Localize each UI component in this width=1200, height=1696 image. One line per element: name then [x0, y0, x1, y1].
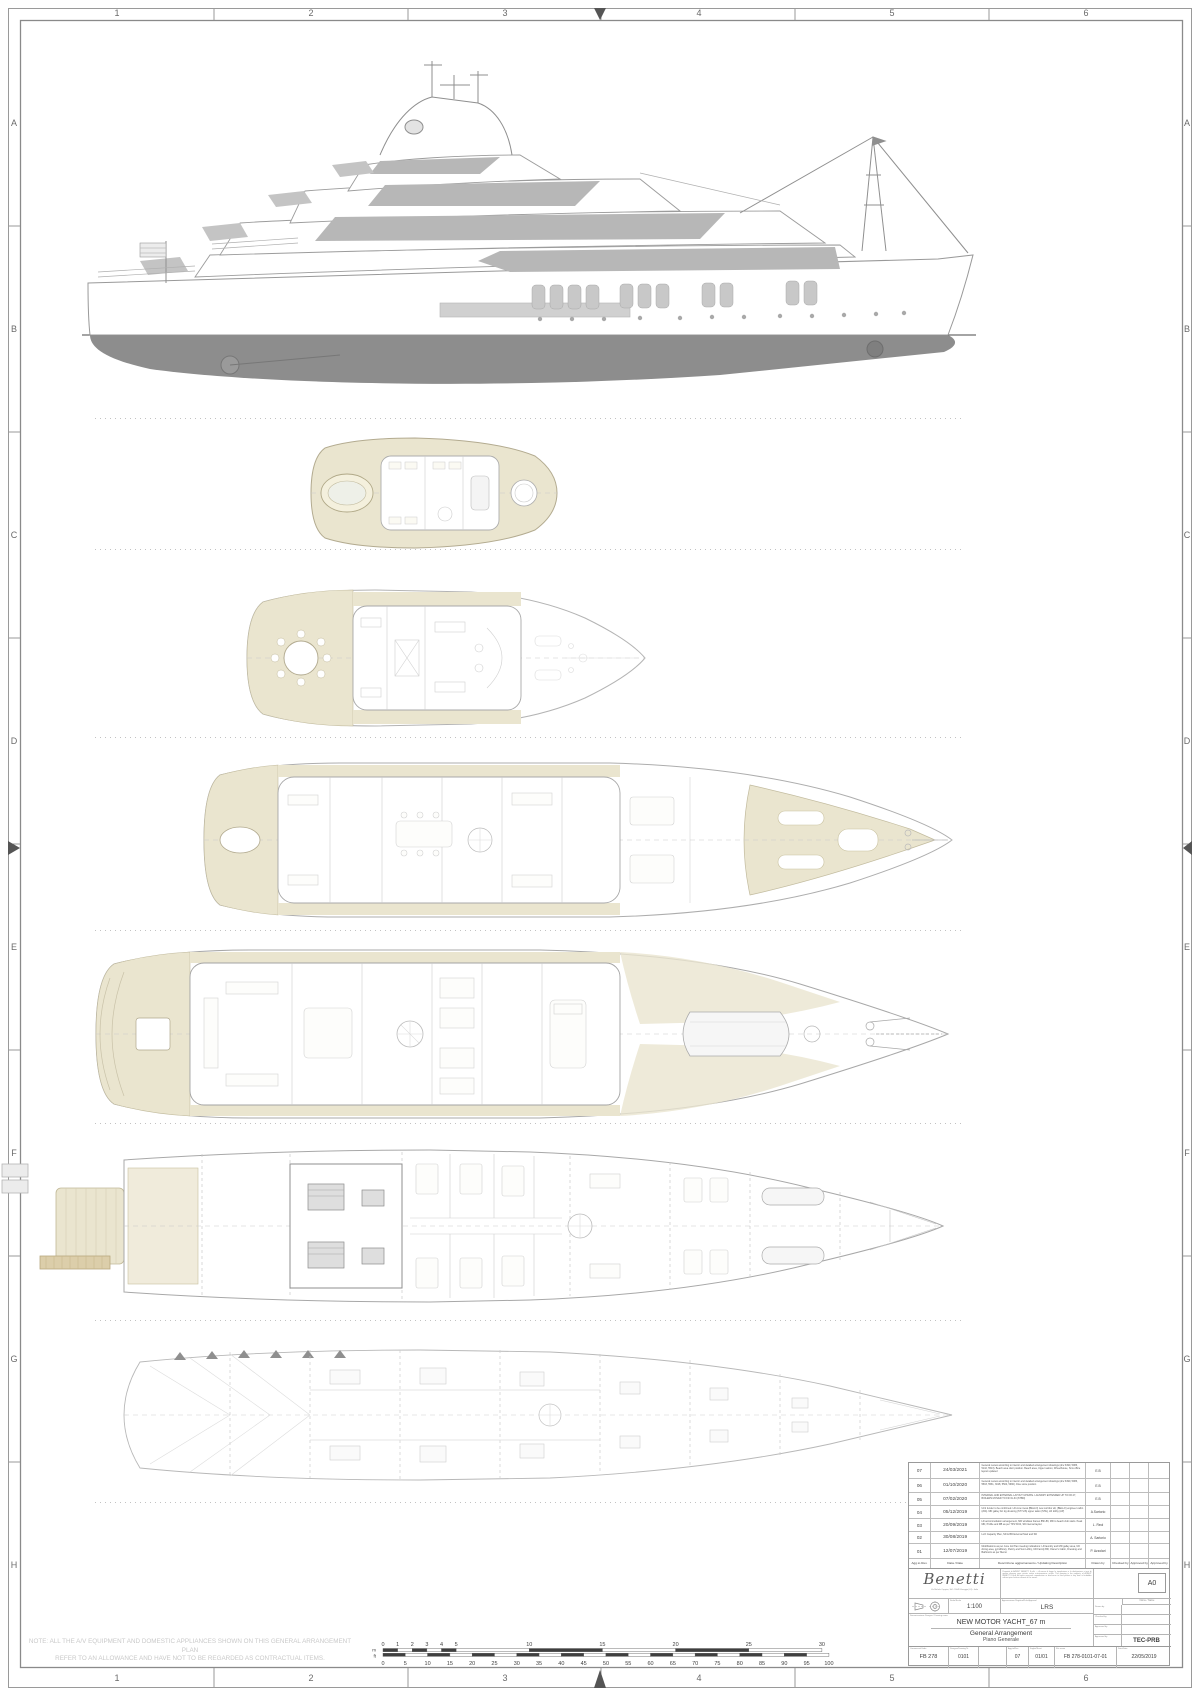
file-label: File name	[1056, 1648, 1065, 1650]
approval-cell: Approvazione Registro/Rule Approval LRS	[1001, 1599, 1094, 1614]
grid-row-label-right: G	[1181, 1354, 1193, 1364]
scale-m-segment	[456, 1649, 529, 1652]
revision-row-07: 0724/03/2021General review according to …	[909, 1463, 1169, 1479]
scale-m-tick: 10	[526, 1642, 532, 1648]
scale-m-segment	[383, 1649, 398, 1652]
scale-ft-segment	[784, 1653, 806, 1656]
dept-value: TEC-PRB	[1122, 1635, 1171, 1646]
scale-ft-segment	[561, 1653, 583, 1656]
scale-ft-tick: 90	[781, 1661, 787, 1667]
scale-m-segment	[412, 1649, 427, 1652]
approved-by-label: Approved by	[1094, 1625, 1122, 1635]
scale-ft-segment	[584, 1653, 606, 1656]
scale-bar: 0123451015202530051015202530354045505560…	[355, 1636, 855, 1672]
projection-symbol	[909, 1599, 949, 1614]
scale-ft-segment	[762, 1653, 784, 1656]
scale-m-segment	[427, 1649, 442, 1652]
file-value: FB 278-0101-07-01	[1055, 1654, 1116, 1660]
scale-ft-segment	[383, 1653, 405, 1656]
sheet-cell: Foglio/Sheet 01/01	[1029, 1647, 1055, 1668]
approved-by-value	[1122, 1625, 1171, 1635]
lower-deck-plan	[50, 1130, 960, 1322]
grid-col-label-bottom: 3	[465, 1673, 545, 1683]
title-block-bottom-row: Commessa/Order FB 278 Disegno/Drawing N.…	[909, 1646, 1171, 1667]
logo-address: Via Michele Coppino, 104 - 55049 Viaregg…	[909, 1589, 1000, 1591]
scale-ft-tick: 95	[804, 1661, 810, 1667]
scale-m-segment	[442, 1649, 457, 1652]
grid-row-label-left: H	[8, 1560, 20, 1570]
drawn-by-label: Drawn by	[1094, 1605, 1122, 1615]
revision-table: 0724/03/2021General review according to …	[908, 1462, 1170, 1570]
scale-ft-segment	[472, 1653, 494, 1656]
scale-ft-tick: 0	[381, 1661, 384, 1667]
rev-value: 07	[1007, 1654, 1028, 1660]
scale-ft-tick: 10	[425, 1661, 431, 1667]
scale-ft-segment	[673, 1653, 695, 1656]
revision-row-06: 0601/10/2020General review according to …	[909, 1479, 1169, 1493]
revision-row-05: 0507/02/2020INTERNAL AND EXTERNAL LAYOUT…	[909, 1493, 1169, 1506]
grid-row-label-right: B	[1181, 324, 1193, 334]
sheet-label: Foglio/Sheet	[1030, 1648, 1042, 1650]
grid-col-label-top: 2	[271, 8, 351, 18]
scale-m-tick: 5	[455, 1642, 458, 1648]
upper-deck-plan	[190, 745, 965, 935]
projection-cell	[909, 1599, 949, 1614]
grid-col-label-top: 4	[659, 8, 739, 18]
scale-ft-segment	[628, 1653, 650, 1656]
scale-ft-segment	[807, 1653, 829, 1656]
checked-by-label: Checked by	[1094, 1615, 1122, 1625]
scale-ft-tick: 70	[692, 1661, 698, 1667]
grid-row-label-left: D	[8, 736, 20, 746]
drawing-no-cell: Disegno/Drawing N. 0101	[949, 1647, 979, 1668]
scale-m-tick: 2	[411, 1642, 414, 1648]
title-line1: NEW MOTOR YACHT_67 m	[909, 1619, 1093, 1626]
format-cell: A0	[1094, 1569, 1171, 1599]
benetti-logo: Benetti	[909, 1572, 1000, 1587]
scale-ft-tick: 55	[625, 1661, 631, 1667]
hull-underwater	[90, 335, 955, 384]
grid-col-label-bottom: 4	[659, 1673, 739, 1683]
sun-deck-plan	[295, 418, 575, 568]
legal-text: Proprietà di AZIMUT BENETTI S.p.A. — A n…	[1001, 1569, 1093, 1581]
scale-ft-tick: 15	[447, 1661, 453, 1667]
grid-row-label-right: C	[1181, 530, 1193, 540]
date-cell: Data/Date 22/05/2019	[1117, 1647, 1171, 1668]
revision-row-02: 0230/08/2019LLO Capacity Plan, SD & BD E…	[909, 1532, 1169, 1544]
scale-m-tick: 4	[440, 1642, 443, 1648]
bridge-deck-plan	[235, 570, 655, 745]
scale-m-tick: 1	[396, 1642, 399, 1648]
scale-ft-segment	[428, 1653, 450, 1656]
legal-cell: Proprietà di AZIMUT BENETTI S.p.A. — A n…	[1001, 1569, 1094, 1599]
design-label: Denominazione Disegno / Drawing name	[910, 1615, 948, 1617]
scale-ft-tick: 20	[469, 1661, 475, 1667]
grid-row-label-right: F	[1181, 1148, 1193, 1158]
scale-ft-tick: 50	[603, 1661, 609, 1667]
scale-ft-tick: 30	[514, 1661, 520, 1667]
revision-row-03: 0320/09/2019LD accommodation arrangement…	[909, 1519, 1169, 1532]
revision-row-01: 0112/07/2019Modifications as per June 1s…	[909, 1544, 1169, 1559]
scale-m-segment	[676, 1649, 749, 1652]
grid-row-label-left: F	[8, 1148, 20, 1158]
checked-by-value	[1122, 1615, 1171, 1625]
scale-ft-segment	[539, 1653, 561, 1656]
scale-m-tick: 0	[381, 1642, 384, 1648]
approved2-by-label: Approved by	[1094, 1635, 1122, 1646]
scale-ft-tick: 85	[759, 1661, 765, 1667]
drawing-title-cell: Denominazione Disegno / Drawing name NEW…	[909, 1614, 1094, 1646]
drawing-title: NEW MOTOR YACHT_67 m General Arrangement…	[909, 1619, 1093, 1643]
scale-ft-segment	[717, 1653, 739, 1656]
scale-ft-tick: 35	[536, 1661, 542, 1667]
scale-unit-ft: ft	[373, 1654, 376, 1659]
scale-ft-tick: 40	[558, 1661, 564, 1667]
title-line2: General Arrangement	[909, 1630, 1093, 1637]
main-deck-plan	[80, 938, 965, 1130]
grid-col-label-bottom: 1	[77, 1673, 157, 1683]
title-line3: Piano Generale	[909, 1637, 1093, 1643]
scale-m-tick: 20	[673, 1642, 679, 1648]
scale-ft-segment	[695, 1653, 717, 1656]
grid-row-label-left: G	[8, 1354, 20, 1364]
scale-ft-tick: 45	[581, 1661, 587, 1667]
logo-cell: Benetti Via Michele Coppino, 104 - 55049…	[909, 1569, 1001, 1599]
scale-m-tick: 3	[425, 1642, 428, 1648]
scale-ft-tick: 5	[404, 1661, 407, 1667]
order-cell: Commessa/Order FB 278	[909, 1647, 949, 1668]
approval-value: LRS	[1001, 1604, 1093, 1611]
grid-col-label-top: 3	[465, 8, 545, 18]
note-av-line2: REFER TO AN ALLOWANCE AND HAVE NOT TO BE…	[55, 1655, 325, 1662]
scale-ft-tick: 80	[737, 1661, 743, 1667]
scale-ft-tick: 100	[824, 1661, 833, 1667]
scale-ft-segment	[405, 1653, 427, 1656]
radar-mast	[380, 61, 512, 155]
sheet-value: 01/01	[1029, 1654, 1054, 1660]
grid-col-label-bottom: 6	[1046, 1673, 1126, 1683]
scale-unit-m: m	[372, 1648, 376, 1653]
spare-cell	[979, 1647, 1007, 1668]
scale-ft-tick: 25	[491, 1661, 497, 1667]
scale-m-segment	[602, 1649, 675, 1652]
signature-column: Nome / Name Drawn by Checked by Approved…	[1094, 1599, 1171, 1646]
rev-cell: Agg.to/Rev. 07	[1007, 1647, 1029, 1668]
date-label: Data/Date	[1118, 1648, 1127, 1650]
date-value: 22/05/2019	[1117, 1654, 1171, 1660]
scale-label: Scala/Scale	[950, 1600, 961, 1602]
grid-col-label-top: 1	[77, 8, 157, 18]
rev-label: Agg.to/Rev.	[1008, 1648, 1019, 1650]
revision-row-04: 0405/12/2019ULS fender to be confirmed. …	[909, 1506, 1169, 1519]
scale-value: 1:100	[949, 1604, 1000, 1610]
drawing-sheet: 112233445566AABBCCDDEEFFGGHH	[0, 0, 1200, 1696]
scale-ft-segment	[651, 1653, 673, 1656]
note-av-line1: NOTE: ALL THE A/V EQUIPMENT AND DOMESTIC…	[29, 1638, 351, 1654]
file-cell: File name FB 278-0101-07-01	[1055, 1647, 1117, 1668]
order-value: FB 278	[909, 1654, 948, 1660]
drawing-no-label: Disegno/Drawing N.	[950, 1648, 968, 1650]
grid-row-label-left: E	[8, 942, 20, 952]
drawing-no-value: 0101	[949, 1654, 978, 1660]
grid-col-label-top: 6	[1046, 8, 1126, 18]
approval-label: Approvazione Registro/Rule Approval	[1002, 1600, 1037, 1602]
scale-m-tick: 25	[746, 1642, 752, 1648]
scale-ft-segment	[517, 1653, 539, 1656]
scale-m-segment	[749, 1649, 822, 1652]
grid-row-label-right: A	[1181, 118, 1193, 128]
scale-m-tick: 30	[819, 1642, 825, 1648]
grid-col-label-top: 5	[852, 8, 932, 18]
scale-m-segment	[398, 1649, 413, 1652]
scale-ft-segment	[450, 1653, 472, 1656]
grid-row-label-left: C	[8, 530, 20, 540]
scale-ft-segment	[494, 1653, 516, 1656]
grid-row-label-right: H	[1181, 1560, 1193, 1570]
scale-ft-tick: 75	[714, 1661, 720, 1667]
scale-m-tick: 15	[599, 1642, 605, 1648]
drawn-by-value	[1122, 1605, 1171, 1615]
scale-cell: Scala/Scale 1:100	[949, 1599, 1001, 1614]
grid-row-label-right: E	[1181, 942, 1193, 952]
order-label: Commessa/Order	[910, 1648, 926, 1650]
scale-m-segment	[529, 1649, 602, 1652]
grid-col-label-bottom: 2	[271, 1673, 351, 1683]
scale-ft-tick: 65	[670, 1661, 676, 1667]
side-gangway	[0, 1160, 120, 1280]
under-lower-deck-plan	[80, 1322, 965, 1507]
scale-ft-tick: 60	[647, 1661, 653, 1667]
format-a0: A0	[1138, 1573, 1166, 1593]
note-av-equipment: NOTE: ALL THE A/V EQUIPMENT AND DOMESTIC…	[22, 1638, 358, 1664]
scale-ft-segment	[606, 1653, 628, 1656]
profile-view	[80, 45, 980, 395]
grid-col-label-bottom: 5	[852, 1673, 932, 1683]
title-block: Benetti Via Michele Coppino, 104 - 55049…	[908, 1568, 1170, 1666]
grid-row-label-left: A	[8, 118, 20, 128]
scale-ft-segment	[740, 1653, 762, 1656]
grid-row-label-left: B	[8, 324, 20, 334]
grid-row-label-right: D	[1181, 736, 1193, 746]
